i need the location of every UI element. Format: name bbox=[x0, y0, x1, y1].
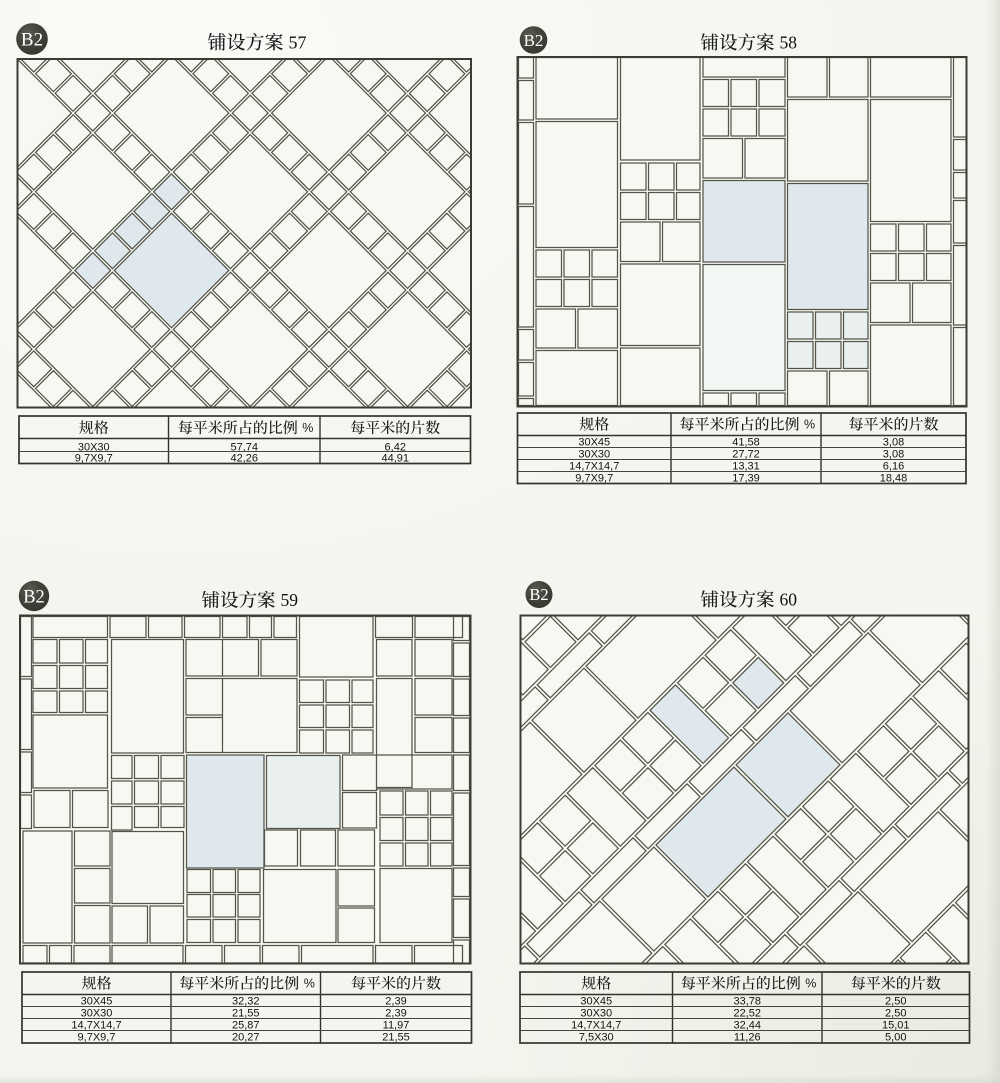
svg-text:9,7X9,7: 9,7X9,7 bbox=[78, 1031, 116, 1043]
svg-text:14,7X14,7: 14,7X14,7 bbox=[571, 1019, 621, 1031]
svg-text:41,58: 41,58 bbox=[732, 436, 760, 448]
svg-text:2,50: 2,50 bbox=[885, 1007, 906, 1019]
svg-text:22,52: 22,52 bbox=[733, 1007, 761, 1019]
svg-text:30X30: 30X30 bbox=[81, 1007, 113, 1019]
svg-text:14,7X14,7: 14,7X14,7 bbox=[569, 460, 619, 472]
svg-text:9,7X9,7: 9,7X9,7 bbox=[575, 472, 613, 484]
svg-text:33,78: 33,78 bbox=[733, 995, 761, 1007]
svg-text:58: 58 bbox=[780, 33, 798, 53]
svg-text:30X45: 30X45 bbox=[580, 995, 612, 1007]
svg-text:3,08: 3,08 bbox=[883, 448, 904, 460]
svg-text:6,16: 6,16 bbox=[883, 460, 904, 472]
svg-text:7,5X30: 7,5X30 bbox=[579, 1031, 614, 1043]
svg-text:%: % bbox=[304, 977, 315, 991]
svg-text:57: 57 bbox=[289, 33, 307, 53]
svg-text:5,00: 5,00 bbox=[885, 1031, 906, 1043]
svg-text:32,32: 32,32 bbox=[232, 995, 260, 1007]
svg-text:3,08: 3,08 bbox=[883, 436, 904, 448]
svg-text:%: % bbox=[805, 977, 816, 991]
svg-text:27,72: 27,72 bbox=[732, 448, 760, 460]
svg-text:%: % bbox=[302, 421, 313, 435]
svg-text:59: 59 bbox=[281, 590, 299, 610]
svg-text:2,50: 2,50 bbox=[885, 995, 906, 1007]
svg-text:11,97: 11,97 bbox=[383, 1019, 410, 1031]
svg-text:60: 60 bbox=[780, 590, 798, 610]
svg-text:13,31: 13,31 bbox=[732, 460, 760, 472]
svg-text:30X45: 30X45 bbox=[81, 995, 113, 1007]
svg-text:18,48: 18,48 bbox=[880, 472, 908, 484]
svg-text:11,26: 11,26 bbox=[734, 1031, 761, 1043]
svg-text:42,26: 42,26 bbox=[230, 452, 258, 464]
svg-text:32,44: 32,44 bbox=[733, 1019, 761, 1031]
svg-text:17,39: 17,39 bbox=[732, 472, 760, 484]
svg-text:B2: B2 bbox=[23, 587, 45, 607]
svg-text:9,7X9,7: 9,7X9,7 bbox=[75, 452, 113, 464]
svg-text:25,87: 25,87 bbox=[232, 1019, 260, 1031]
svg-text:21,55: 21,55 bbox=[232, 1007, 260, 1019]
svg-text:2,39: 2,39 bbox=[385, 995, 406, 1007]
svg-text:15,01: 15,01 bbox=[882, 1019, 910, 1031]
svg-text:%: % bbox=[804, 418, 815, 432]
svg-text:B2: B2 bbox=[529, 585, 548, 604]
svg-text:30X30: 30X30 bbox=[578, 448, 610, 460]
svg-text:44,91: 44,91 bbox=[381, 452, 409, 464]
svg-text:21,55: 21,55 bbox=[382, 1031, 410, 1043]
svg-text:B2: B2 bbox=[524, 31, 544, 50]
svg-text:2,39: 2,39 bbox=[385, 1007, 406, 1019]
svg-text:B2: B2 bbox=[21, 29, 43, 50]
svg-text:20,27: 20,27 bbox=[232, 1031, 260, 1043]
svg-text:14,7X14,7: 14,7X14,7 bbox=[71, 1019, 121, 1031]
svg-text:30X45: 30X45 bbox=[578, 436, 610, 448]
svg-text:30X30: 30X30 bbox=[580, 1007, 612, 1019]
